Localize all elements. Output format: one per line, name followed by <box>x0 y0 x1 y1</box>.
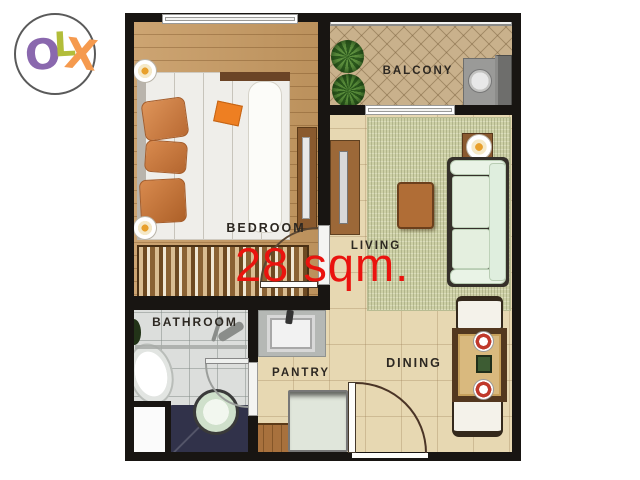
niche <box>134 407 165 452</box>
niche-wall <box>165 401 171 452</box>
bedroom-label: BEDROOM <box>226 221 305 235</box>
olx-logo: O L X <box>14 13 96 95</box>
bathroom-door-leaf <box>205 358 249 364</box>
balcony-label: BALCONY <box>383 65 454 77</box>
dining-plate <box>473 331 494 352</box>
floorplan-image: O L X <box>0 0 640 480</box>
washing-machine-door <box>468 69 492 93</box>
wall-bedroom-living <box>318 22 330 225</box>
table-centerpiece <box>476 355 492 373</box>
bathroom-door-opening <box>248 362 258 416</box>
wall-bottom <box>125 452 521 461</box>
wall-bedroom-bottom <box>125 296 330 310</box>
dining-chair <box>456 296 503 330</box>
dining-label: DINING <box>386 356 442 370</box>
bed-bolster <box>248 81 282 233</box>
sofa-backrest <box>489 163 506 281</box>
shower-glass-partition <box>135 345 247 349</box>
olx-letter-x: X <box>63 32 100 78</box>
balcony-sliding-door <box>365 105 455 115</box>
sofa-cushion <box>452 176 490 228</box>
wall-bathroom-right <box>248 416 258 452</box>
plant-icon <box>332 74 365 107</box>
coffee-table <box>397 182 434 229</box>
living-tv <box>339 151 348 224</box>
bedroom-tv <box>302 137 310 219</box>
pantry-label: PANTRY <box>272 367 330 379</box>
bed-headboard <box>220 72 290 81</box>
wall-left <box>125 13 134 461</box>
area-annotation: 28 sqm. <box>235 237 409 292</box>
wall-plate-decor <box>133 59 157 83</box>
pillow <box>144 140 188 175</box>
floorplan: BEDROOM BALCONY LIVING DINING BATHROOM P… <box>125 13 521 461</box>
dining-chair <box>452 399 503 437</box>
entrance-opening <box>352 453 428 460</box>
entrance-door-leaf <box>348 382 356 453</box>
sofa-cushion <box>452 229 490 269</box>
refrigerator <box>288 390 348 452</box>
dining-plate <box>473 379 494 400</box>
wall-plate-decor <box>133 216 157 240</box>
bathroom-label: BATHROOM <box>152 315 238 329</box>
pillow <box>140 96 189 142</box>
wall-bathroom-right <box>248 310 258 362</box>
balcony-cabinet <box>495 55 512 111</box>
bedroom-window <box>162 14 298 24</box>
plant-icon <box>331 40 364 73</box>
wall-right <box>512 13 521 461</box>
